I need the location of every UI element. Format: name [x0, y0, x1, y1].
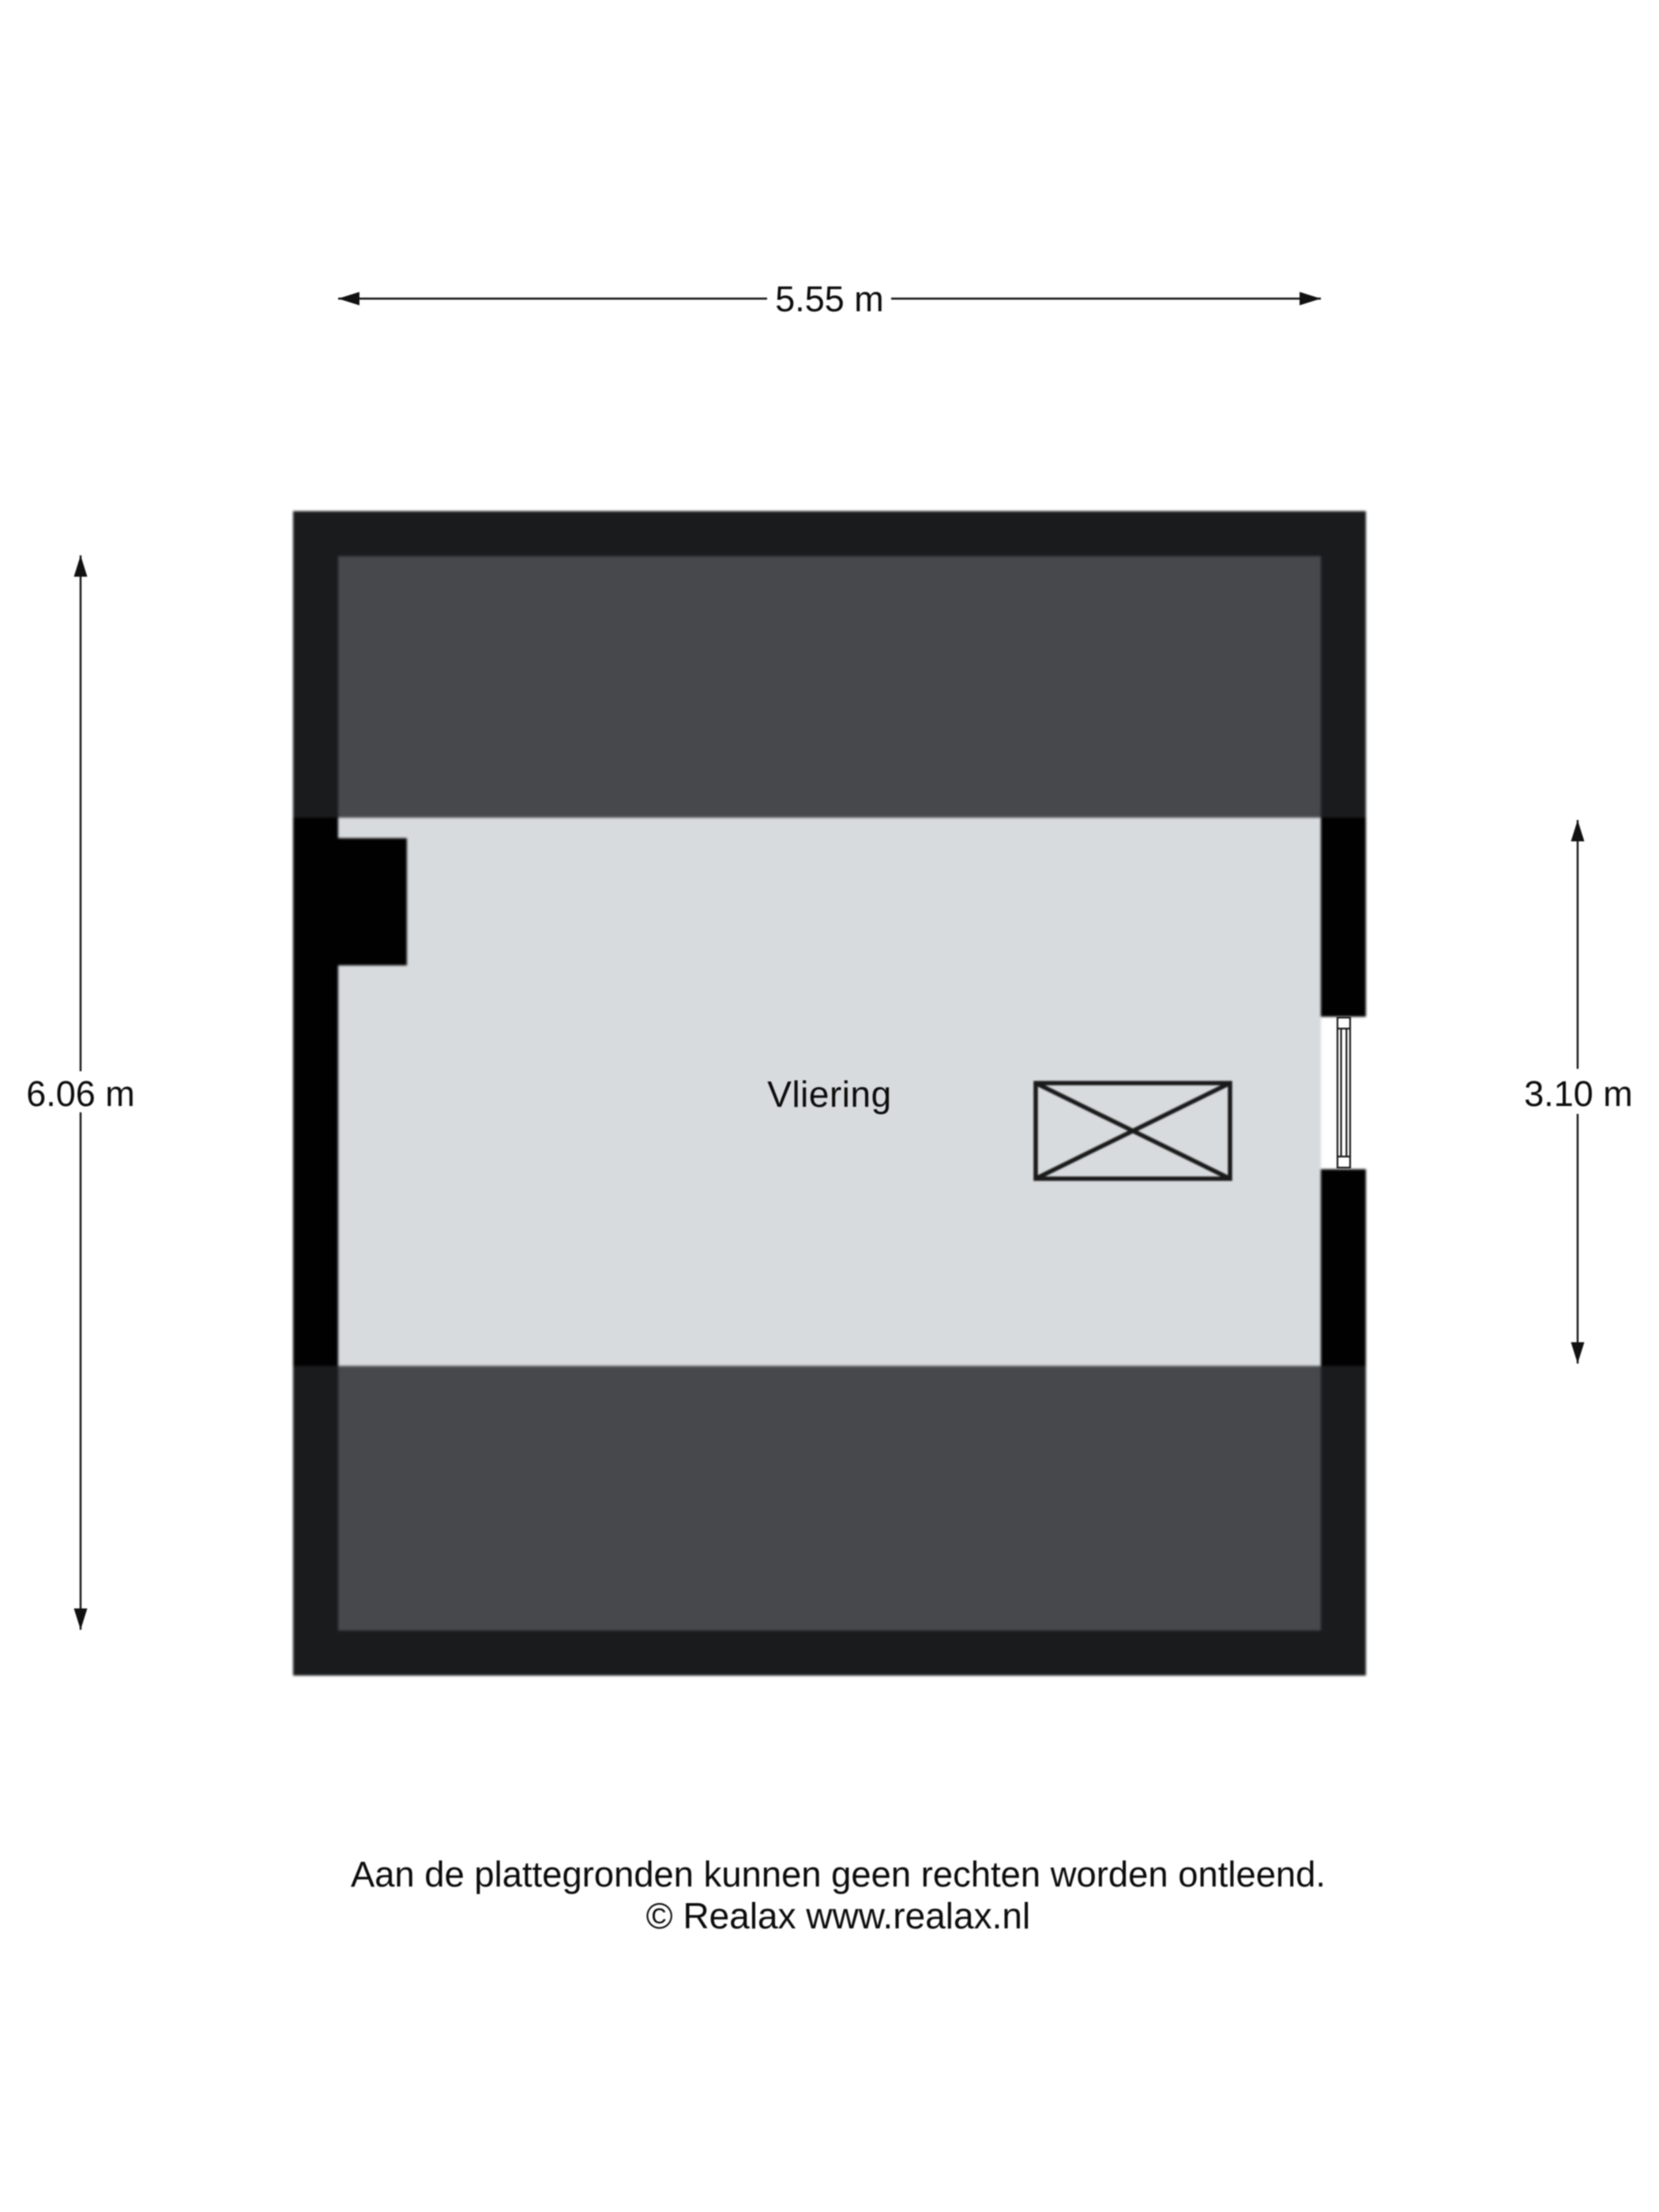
- svg-text:© Realax www.realax.nl: © Realax www.realax.nl: [646, 1895, 1030, 1936]
- svg-text:Aan de plattegronden kunnen ge: Aan de plattegronden kunnen geen rechten…: [351, 1854, 1326, 1894]
- svg-text:3.10 m: 3.10 m: [1524, 1074, 1633, 1114]
- svg-text:Vliering: Vliering: [767, 1074, 891, 1115]
- svg-text:6.06 m: 6.06 m: [26, 1074, 135, 1114]
- svg-text:5.55 m: 5.55 m: [775, 279, 884, 319]
